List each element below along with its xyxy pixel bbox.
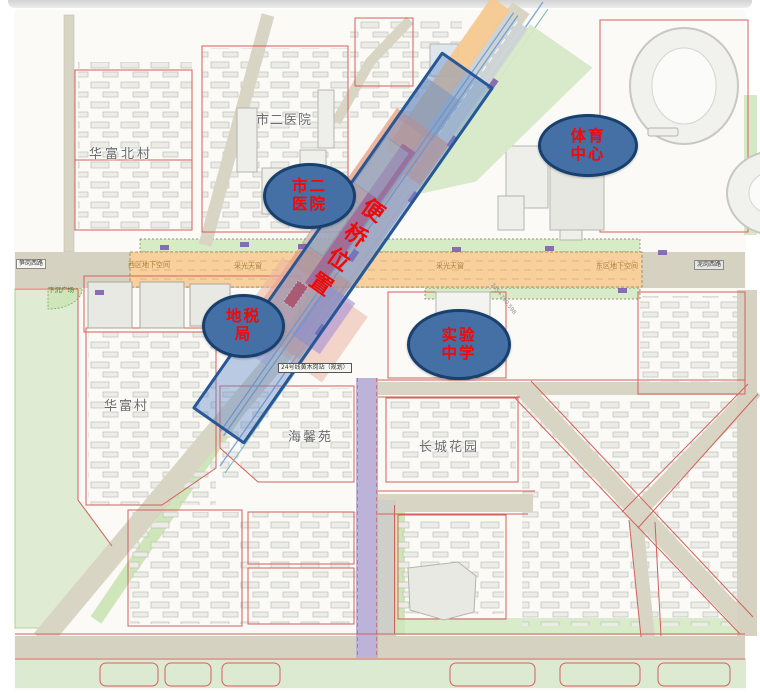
label-haixin-garden: 海馨苑 [288,426,333,445]
callout-sports-center-line2: 中心 [570,146,605,164]
planning-map[interactable]: 便桥位置 市二医院 华富北村 华富村 海馨苑 长城花园 笋岗西路 西区地下空间 … [0,0,760,693]
callout-experimental-school-line1: 实验 [441,327,476,345]
callout-city-second-hospital-line1: 市二 [292,178,327,196]
callout-experimental-school: 实验 中学 [407,309,511,380]
callout-local-tax-bureau: 地税 局 [202,294,285,358]
label-huafu-village: 华富村 [104,395,149,414]
label-east-underground-space: 东区地下空间 [596,263,638,270]
label-west-underground-space: 西区地下空间 [128,262,170,269]
callout-local-tax-bureau-line1: 地税 [226,308,261,326]
map-base-graphics [0,0,760,693]
callout-local-tax-bureau-line2: 局 [235,326,253,344]
callout-sports-center: 体育 中心 [538,114,638,177]
callout-city-second-hospital: 市二 医院 [263,163,356,229]
callout-city-second-hospital-line2: 医院 [292,196,327,214]
label-skylight-west: 采光天窗 [234,263,262,270]
callout-experimental-school-line2: 中学 [441,345,476,363]
label-huafu-north-village: 华富北村 [89,143,153,162]
label-city-second-hospital-area: 市二医院 [256,109,312,128]
label-skylight-east: 采光天窗 [436,263,464,270]
label-sunken-plaza: 下沉广场 [48,287,74,294]
label-nigang-west-road: 泥岗西路 [694,260,724,270]
label-sungang-west-road: 笋岗西路 [16,259,46,269]
label-greatwall-garden: 长城花园 [419,436,479,455]
label-metro-station: 24号线黄木岗站（规划） [278,363,352,373]
callout-sports-center-line1: 体育 [570,128,605,146]
